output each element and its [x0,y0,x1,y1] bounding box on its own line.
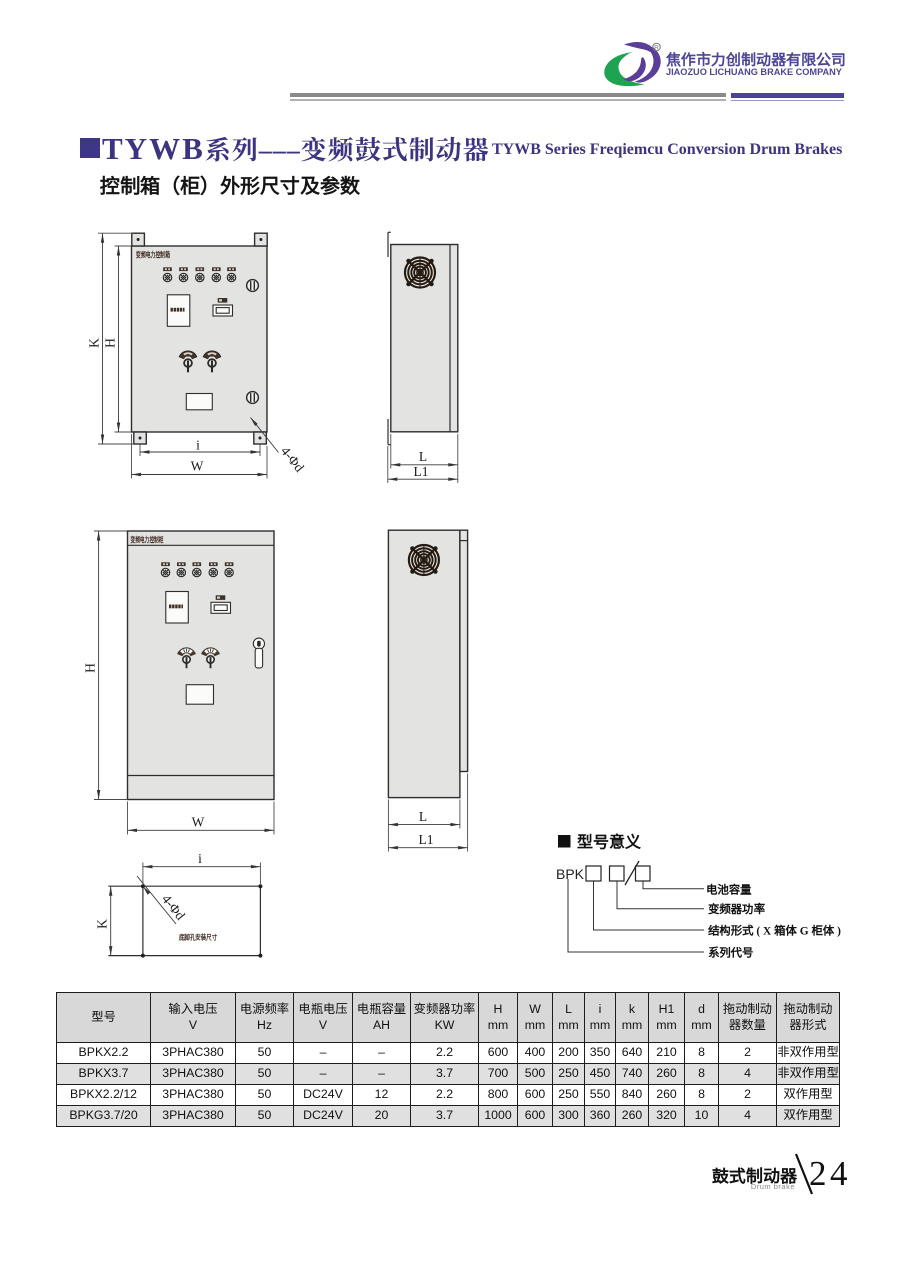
svg-text:4-Φd: 4-Φd [278,444,307,475]
svg-text:BPK: BPK [556,866,585,882]
svg-text:L1: L1 [414,464,429,479]
svg-text:i: i [196,438,200,453]
svg-text:4-Φd: 4-Φd [159,892,188,923]
svg-text:变频器功率: 变频器功率 [708,901,766,917]
svg-text:结构形式 ( X 箱体 G 柜体 ): 结构形式 ( X 箱体 G 柜体 ) [708,923,841,939]
svg-text:W: W [191,459,204,474]
svg-text:变频电力控制箱: 变频电力控制箱 [136,250,170,261]
svg-text:L1: L1 [419,832,434,847]
svg-text:型号意义: 型号意义 [577,829,641,853]
svg-text:变频电力控制柜: 变频电力控制柜 [131,535,164,546]
svg-text:H: H [103,338,118,348]
svg-text:L: L [419,449,427,464]
svg-text:电池容量: 电池容量 [706,881,752,897]
svg-text:底脚孔安装尺寸: 底脚孔安装尺寸 [178,932,217,943]
svg-text:i: i [198,851,202,866]
svg-text:L: L [419,809,427,824]
svg-text:系列代号: 系列代号 [708,945,754,961]
svg-text:K: K [87,338,102,348]
svg-text:H: H [83,663,98,673]
svg-text:W: W [192,815,205,830]
svg-text:K: K [95,919,110,929]
